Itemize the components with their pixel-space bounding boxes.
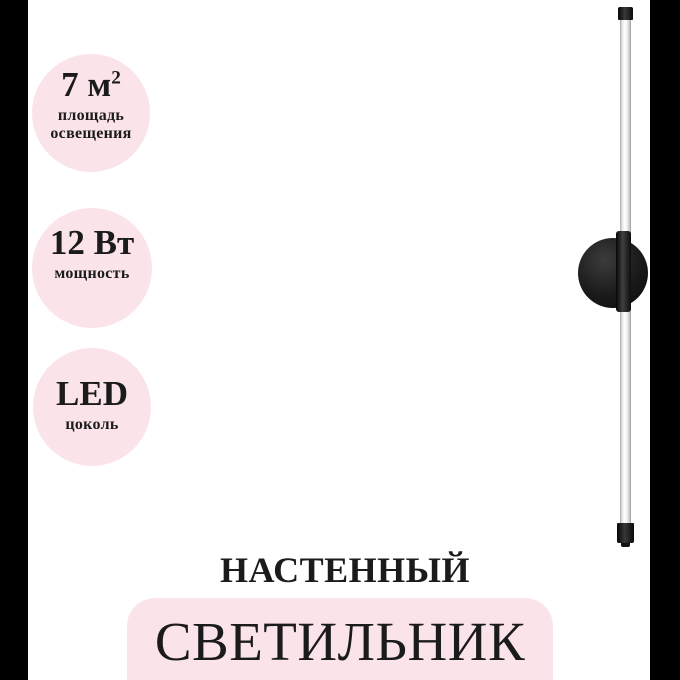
lamp-top-cap	[618, 7, 633, 20]
spec-label-line: площадь	[50, 107, 131, 125]
spec-label-line: мощность	[54, 265, 129, 283]
spec-label-line: освещения	[50, 125, 131, 143]
right-black-strip	[650, 0, 680, 680]
lamp-wall-mount-disc	[578, 238, 648, 308]
spec-value-superscript: 2	[111, 68, 121, 89]
spec-label-socket: цоколь	[65, 416, 118, 434]
spec-badge-area: 7 м2 площадь освещения	[32, 54, 150, 172]
left-black-strip	[0, 0, 28, 680]
spec-value-area: 7 м2	[61, 67, 121, 104]
spec-badge-socket-content: LED цоколь	[56, 376, 128, 434]
lamp-bottom-nub	[621, 543, 630, 547]
spec-badge-area-content: 7 м2 площадь освещения	[50, 67, 131, 143]
spec-value-text: 12 Вт	[50, 223, 134, 262]
product-type-label: НАСТЕННЫЙ	[195, 549, 495, 591]
spec-label-power: мощность	[54, 265, 129, 283]
lamp-tube-holder	[616, 231, 631, 312]
spec-badge-power: 12 Вт мощность	[32, 208, 152, 328]
spec-label-line: цоколь	[65, 416, 118, 434]
spec-value-text: LED	[56, 374, 128, 413]
product-name-label: СВЕТИЛЬНИК	[155, 606, 525, 673]
spec-value-text: 7 м	[61, 65, 111, 104]
spec-badge-power-content: 12 Вт мощность	[50, 225, 134, 283]
product-name-banner: СВЕТИЛЬНИК	[127, 598, 553, 680]
spec-value-power: 12 Вт	[50, 225, 134, 262]
spec-label-area: площадь освещения	[50, 107, 131, 143]
spec-badge-socket: LED цоколь	[33, 348, 151, 466]
spec-value-socket: LED	[56, 376, 128, 413]
lamp-bottom-cap	[617, 523, 634, 543]
product-card: 7 м2 площадь освещения 12 Вт мощность LE…	[0, 0, 680, 680]
